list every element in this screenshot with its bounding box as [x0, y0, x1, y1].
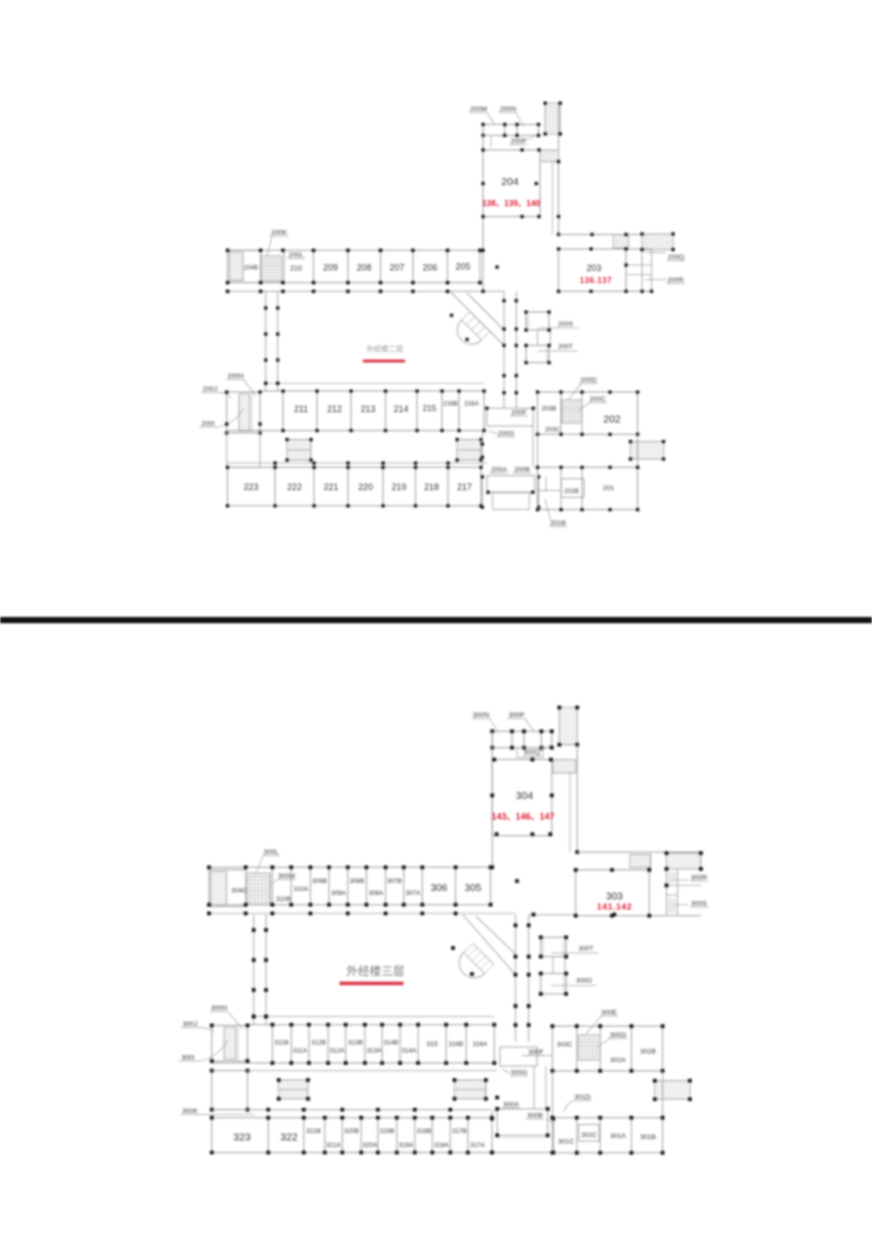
svg-text:313B: 313B — [348, 1040, 363, 1047]
svg-text:309A: 309A — [331, 890, 347, 897]
svg-text:138、139、140: 138、139、140 — [482, 198, 541, 208]
svg-text:306: 306 — [431, 883, 448, 894]
svg-text:300D: 300D — [610, 1032, 626, 1039]
svg-text:211: 211 — [294, 404, 308, 414]
svg-text:201: 201 — [603, 485, 615, 492]
svg-text:204: 204 — [501, 176, 519, 188]
svg-text:200S: 200S — [558, 321, 574, 328]
svg-text:210: 210 — [290, 266, 302, 273]
svg-text:200F: 200F — [511, 410, 527, 417]
svg-text:300J: 300J — [183, 1021, 198, 1028]
svg-text:200R: 200R — [667, 277, 683, 284]
svg-text:200N: 200N — [500, 106, 516, 113]
svg-text:300M: 300M — [278, 873, 295, 880]
svg-text:316A: 316A — [473, 1041, 489, 1048]
svg-text:300S: 300S — [691, 901, 707, 908]
svg-text:200M: 200M — [470, 106, 487, 113]
svg-text:221: 221 — [324, 482, 339, 492]
svg-text:300I: 300I — [181, 1055, 194, 1062]
svg-text:307A: 307A — [406, 890, 422, 897]
svg-text:301D: 301D — [574, 1094, 590, 1101]
svg-text:300K: 300K — [182, 1108, 198, 1115]
svg-text:200T: 200T — [558, 344, 573, 351]
svg-text:218: 218 — [424, 482, 439, 492]
svg-text:222: 222 — [287, 482, 302, 492]
svg-text:216A: 216A — [464, 401, 479, 408]
svg-text:300E: 300E — [601, 1010, 617, 1017]
svg-text:200Q: 200Q — [668, 254, 685, 261]
svg-text:217: 217 — [457, 482, 472, 492]
svg-text:200P: 200P — [511, 138, 527, 145]
svg-text:200C: 200C — [589, 396, 605, 403]
svg-text:201B: 201B — [550, 520, 566, 527]
svg-text:206: 206 — [423, 263, 438, 273]
svg-text:308B: 308B — [350, 878, 365, 885]
svg-text:136.137: 136.137 — [580, 276, 612, 285]
svg-text:313A: 313A — [367, 1048, 383, 1055]
svg-text:207: 207 — [390, 263, 405, 273]
svg-text:143、146、147: 143、146、147 — [491, 812, 554, 822]
svg-text:310A: 310A — [294, 886, 310, 893]
svg-text:215: 215 — [423, 403, 437, 413]
svg-text:304: 304 — [516, 790, 534, 802]
svg-text:300A: 300A — [503, 1102, 519, 1109]
svg-text:309B: 309B — [312, 878, 327, 885]
svg-text:223: 223 — [244, 482, 259, 492]
svg-text:300G: 300G — [511, 1070, 528, 1077]
svg-text:312A: 312A — [330, 1048, 346, 1055]
svg-text:301B: 301B — [640, 1134, 656, 1141]
svg-text:304C: 304C — [231, 888, 247, 895]
svg-text:204B: 204B — [244, 266, 258, 272]
svg-text:321B: 321B — [306, 1128, 321, 1135]
svg-text:307B: 307B — [387, 878, 402, 885]
svg-text:200B: 200B — [514, 467, 530, 474]
svg-text:200L: 200L — [288, 252, 303, 259]
svg-text:213: 213 — [361, 404, 376, 414]
svg-text:209: 209 — [323, 263, 338, 273]
svg-text:311B: 311B — [274, 1040, 288, 1047]
svg-text:300O: 300O — [576, 978, 592, 985]
svg-text:200H: 200H — [227, 373, 243, 380]
svg-text:203C: 203C — [545, 427, 561, 434]
svg-text:305: 305 — [465, 883, 482, 894]
svg-text:321A: 321A — [326, 1142, 342, 1149]
svg-text:216B: 216B — [443, 401, 457, 408]
svg-text:203: 203 — [587, 263, 602, 273]
svg-text:314A: 314A — [402, 1048, 418, 1055]
svg-text:300Q: 300Q — [524, 749, 541, 756]
svg-text:外经楼三层: 外经楼三层 — [346, 964, 405, 978]
svg-text:300T: 300T — [579, 946, 594, 953]
svg-text:301C: 301C — [558, 1139, 574, 1146]
svg-text:200J: 200J — [203, 386, 218, 393]
svg-text:219: 219 — [392, 482, 407, 492]
svg-text:323: 323 — [233, 1132, 251, 1144]
svg-text:202: 202 — [603, 414, 621, 426]
svg-text:322: 322 — [280, 1132, 298, 1144]
svg-text:300R: 300R — [691, 875, 707, 882]
svg-text:212: 212 — [327, 404, 342, 414]
svg-text:220: 220 — [358, 482, 373, 492]
svg-text:300N: 300N — [473, 712, 489, 719]
svg-text:200G: 200G — [498, 431, 515, 438]
svg-text:316B: 316B — [449, 1041, 464, 1048]
svg-text:300P: 300P — [509, 712, 525, 719]
svg-text:203B: 203B — [542, 406, 557, 413]
svg-text:317A: 317A — [470, 1142, 486, 1149]
svg-text:205: 205 — [456, 262, 471, 272]
svg-text:320B: 320B — [344, 1128, 359, 1135]
svg-text:320A: 320A — [363, 1142, 379, 1149]
svg-text:200D: 200D — [580, 377, 596, 384]
svg-text:311A: 311A — [293, 1048, 308, 1055]
svg-text:300H: 300H — [211, 1005, 227, 1012]
svg-text:301A: 301A — [610, 1133, 626, 1140]
svg-text:318B: 318B — [417, 1128, 432, 1135]
svg-text:312B: 312B — [311, 1040, 326, 1047]
svg-text:214: 214 — [394, 404, 409, 414]
svg-text:303C: 303C — [557, 1042, 573, 1049]
svg-text:300F: 300F — [528, 1049, 544, 1056]
svg-text:302B: 302B — [640, 1049, 656, 1056]
svg-text:300B: 300B — [527, 1113, 543, 1120]
svg-text:315: 315 — [426, 1041, 438, 1048]
svg-text:302A: 302A — [610, 1057, 626, 1064]
svg-text:314B: 314B — [384, 1040, 399, 1047]
svg-text:310B: 310B — [276, 896, 291, 903]
svg-text:200I: 200I — [201, 421, 214, 428]
svg-text:208: 208 — [357, 263, 372, 273]
svg-text:202B: 202B — [564, 488, 579, 495]
svg-text:319B: 319B — [380, 1128, 395, 1135]
svg-text:200K: 200K — [271, 230, 287, 237]
svg-text:308A: 308A — [369, 890, 385, 897]
svg-text:302C: 302C — [581, 1132, 597, 1139]
svg-text:200A: 200A — [491, 467, 507, 474]
svg-text:317B: 317B — [452, 1128, 467, 1135]
svg-text:318A: 318A — [434, 1142, 450, 1149]
svg-text:141.142: 141.142 — [597, 902, 632, 912]
svg-text:外经楼二层: 外经楼二层 — [367, 345, 404, 354]
svg-text:319A: 319A — [399, 1142, 415, 1149]
svg-text:300L: 300L — [263, 849, 278, 856]
